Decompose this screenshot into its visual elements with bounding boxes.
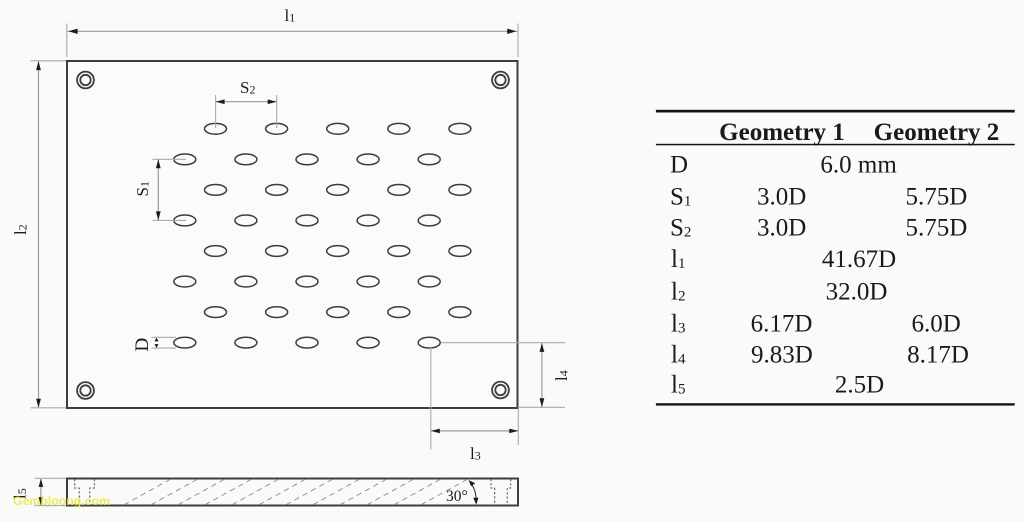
svg-text:3.0D: 3.0D — [757, 184, 806, 211]
svg-text:9.83D: 9.83D — [751, 342, 813, 369]
svg-text:6.0D: 6.0D — [912, 310, 961, 337]
svg-text:6.0 mm: 6.0 mm — [820, 152, 897, 179]
svg-text:8.17D: 8.17D — [907, 342, 969, 369]
svg-text:l5: l5 — [671, 371, 685, 398]
svg-text:l4: l4 — [552, 370, 571, 381]
svg-text:l1: l1 — [285, 6, 296, 25]
svg-text:Gembloong.com: Gembloong.com — [13, 494, 110, 508]
svg-text:l3: l3 — [671, 310, 685, 337]
svg-text:Geometry 1: Geometry 1 — [719, 119, 845, 146]
svg-text:l4: l4 — [671, 342, 686, 369]
svg-text:32.0D: 32.0D — [826, 278, 888, 305]
svg-text:41.67D: 41.67D — [822, 246, 896, 273]
svg-text:l2: l2 — [11, 224, 30, 235]
svg-text:l3: l3 — [470, 444, 481, 463]
svg-text:2.5D: 2.5D — [835, 371, 884, 398]
svg-text:5.75D: 5.75D — [905, 184, 967, 211]
svg-text:S2: S2 — [670, 215, 691, 242]
svg-text:6.17D: 6.17D — [751, 310, 813, 337]
svg-text:30°: 30° — [446, 488, 468, 505]
svg-text:l2: l2 — [671, 278, 685, 305]
svg-text:S1: S1 — [670, 184, 691, 211]
svg-text:D: D — [670, 152, 688, 179]
svg-text:D: D — [132, 338, 153, 352]
svg-text:3.0D: 3.0D — [757, 215, 806, 242]
svg-text:5.75D: 5.75D — [905, 215, 967, 242]
svg-text:l1: l1 — [671, 246, 685, 273]
svg-text:Geometry 2: Geometry 2 — [874, 119, 1000, 146]
